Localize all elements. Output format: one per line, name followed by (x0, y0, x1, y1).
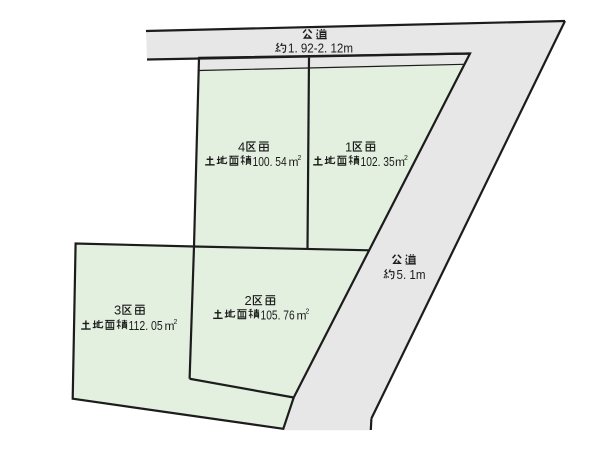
svg-text:4: 4 (238, 139, 245, 154)
svg-text:2: 2 (404, 155, 408, 162)
svg-text:105. 76: 105. 76 (261, 308, 295, 323)
svg-text:112. 05: 112. 05 (129, 318, 163, 333)
svg-text:1: 1 (345, 139, 352, 154)
svg-text:5. 1m: 5. 1m (397, 267, 426, 282)
svg-text:2: 2 (174, 319, 178, 326)
svg-text:2: 2 (245, 293, 252, 308)
svg-text:102. 35: 102. 35 (361, 154, 395, 169)
svg-text:2: 2 (298, 155, 302, 162)
svg-text:1. 92-2. 12m: 1. 92-2. 12m (288, 41, 353, 56)
svg-text:3: 3 (114, 303, 121, 318)
svg-text:2: 2 (306, 309, 310, 316)
svg-text:100. 54: 100. 54 (253, 154, 287, 169)
